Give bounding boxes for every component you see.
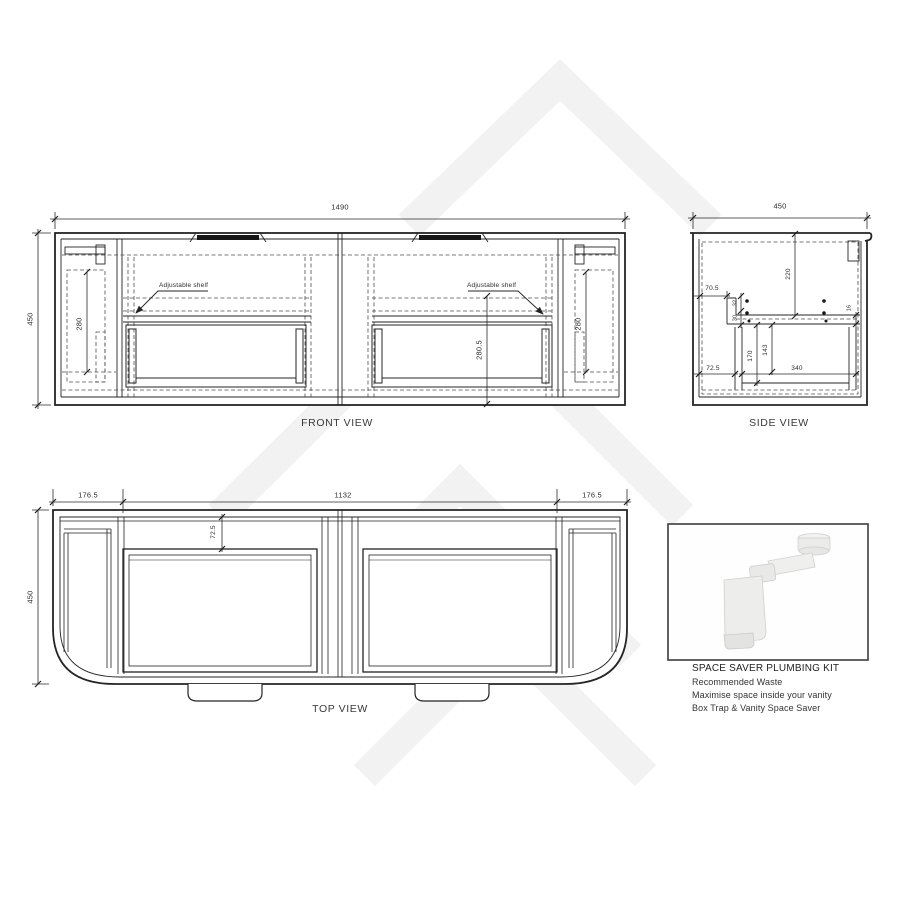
side-shelf-thickness-dimension: 30	[733, 315, 739, 322]
side-depth-dimension: 450	[773, 202, 786, 210]
front-left-door-dimension: 280	[75, 317, 83, 330]
vanity-spec-sheet: 1490 450 280 280 280.5 Adjustable shelf …	[0, 0, 900, 900]
side-drawer-depth-dimension: 170	[748, 350, 755, 361]
adjustable-shelf-note-left: Adjustable shelf	[159, 283, 208, 290]
front-right-door-dimension: 280	[574, 317, 582, 330]
top-view-title: TOP VIEW	[312, 704, 368, 715]
top-left-dimension: 176.5	[78, 491, 98, 499]
side-rail-gap-dimension: 32	[733, 300, 739, 307]
top-inset-dimension: 72.5	[211, 525, 218, 538]
front-height-dimension: 450	[26, 312, 34, 325]
plumbing-kit-line-3: Box Trap & Vanity Space Saver	[692, 704, 820, 713]
side-view-drawing	[688, 212, 871, 405]
side-drawer-width-dimension: 340	[791, 366, 802, 373]
plumbing-kit-box	[668, 524, 868, 660]
technical-drawing	[0, 0, 900, 900]
plumbing-kit-title: SPACE SAVER PLUMBING KIT	[692, 664, 839, 674]
side-view-title: SIDE VIEW	[749, 418, 809, 429]
side-back-rail-dimension: 16	[847, 305, 853, 312]
top-center-dimension: 1132	[335, 491, 352, 499]
side-top-clearance-dimension: 220	[786, 268, 793, 279]
top-depth-dimension: 450	[26, 590, 34, 603]
plumbing-kit-line-2: Maximise space inside your vanity	[692, 691, 832, 700]
front-view-title: FRONT VIEW	[301, 418, 373, 429]
front-view-drawing	[32, 212, 630, 409]
side-front-setback-dimension: 70.5	[705, 286, 718, 293]
handle-tabs	[188, 684, 489, 701]
front-width-dimension: 1490	[331, 203, 349, 211]
plumbing-kit-line-1: Recommended Waste	[692, 678, 782, 687]
front-opening-dimension: 280.5	[475, 340, 483, 360]
side-drawer-inner-dimension: 143	[763, 344, 770, 355]
adjustable-shelf-note-right: Adjustable shelf	[467, 283, 516, 290]
top-view-drawing	[32, 489, 631, 701]
top-right-dimension: 176.5	[582, 491, 602, 499]
side-bottom-setback-dimension: 72.5	[706, 366, 719, 373]
